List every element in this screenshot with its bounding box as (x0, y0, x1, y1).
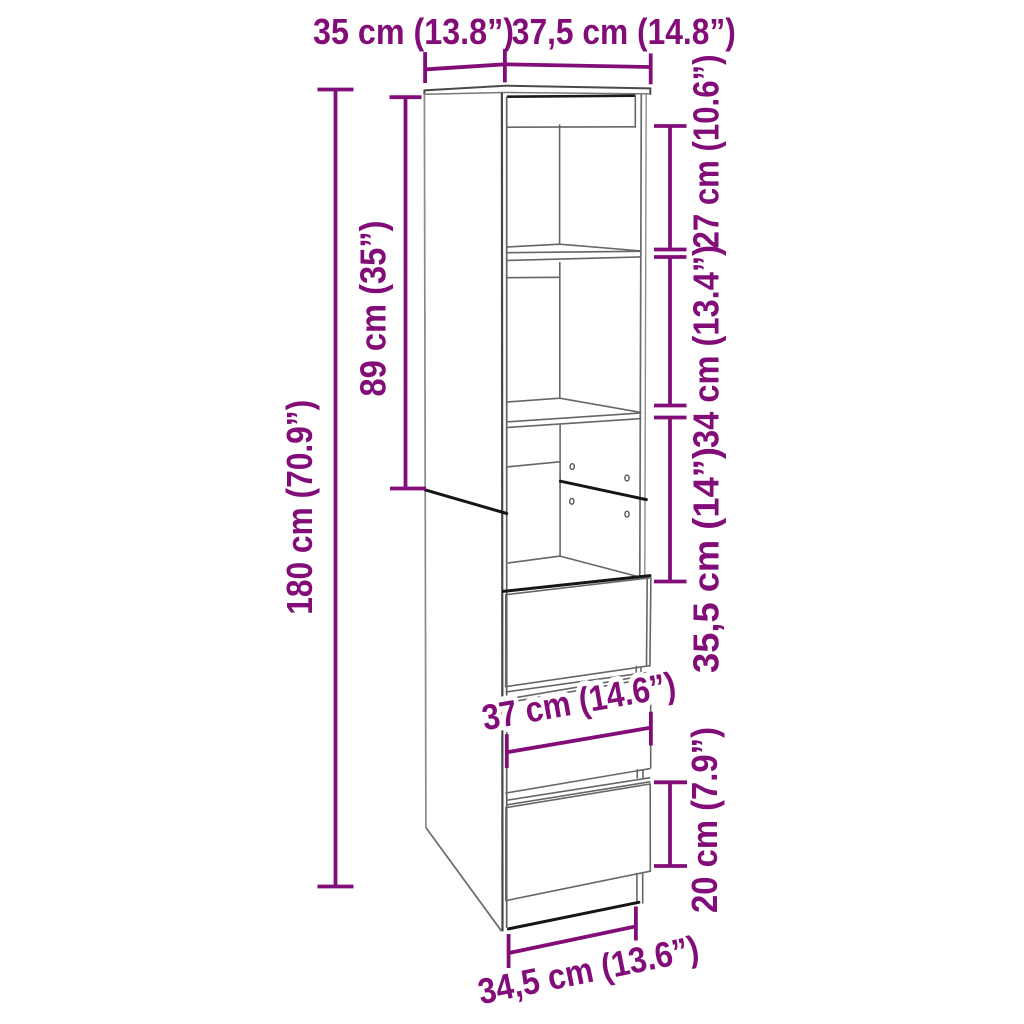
svg-text:27 cm (10.6”): 27 cm (10.6”) (686, 55, 727, 249)
svg-text:20 cm (7.9”): 20 cm (7.9”) (684, 727, 725, 913)
svg-text:37,5 cm (14.8”): 37,5 cm (14.8”) (512, 11, 736, 52)
svg-text:35 cm (13.8”): 35 cm (13.8”) (313, 11, 514, 52)
svg-text:89 cm (35”): 89 cm (35”) (352, 221, 393, 397)
svg-text:35,5 cm (14”): 35,5 cm (14”) (686, 447, 727, 673)
svg-text:34 cm (13.4”): 34 cm (13.4”) (686, 245, 727, 448)
svg-text:180 cm (70.9”): 180 cm (70.9”) (279, 400, 320, 615)
